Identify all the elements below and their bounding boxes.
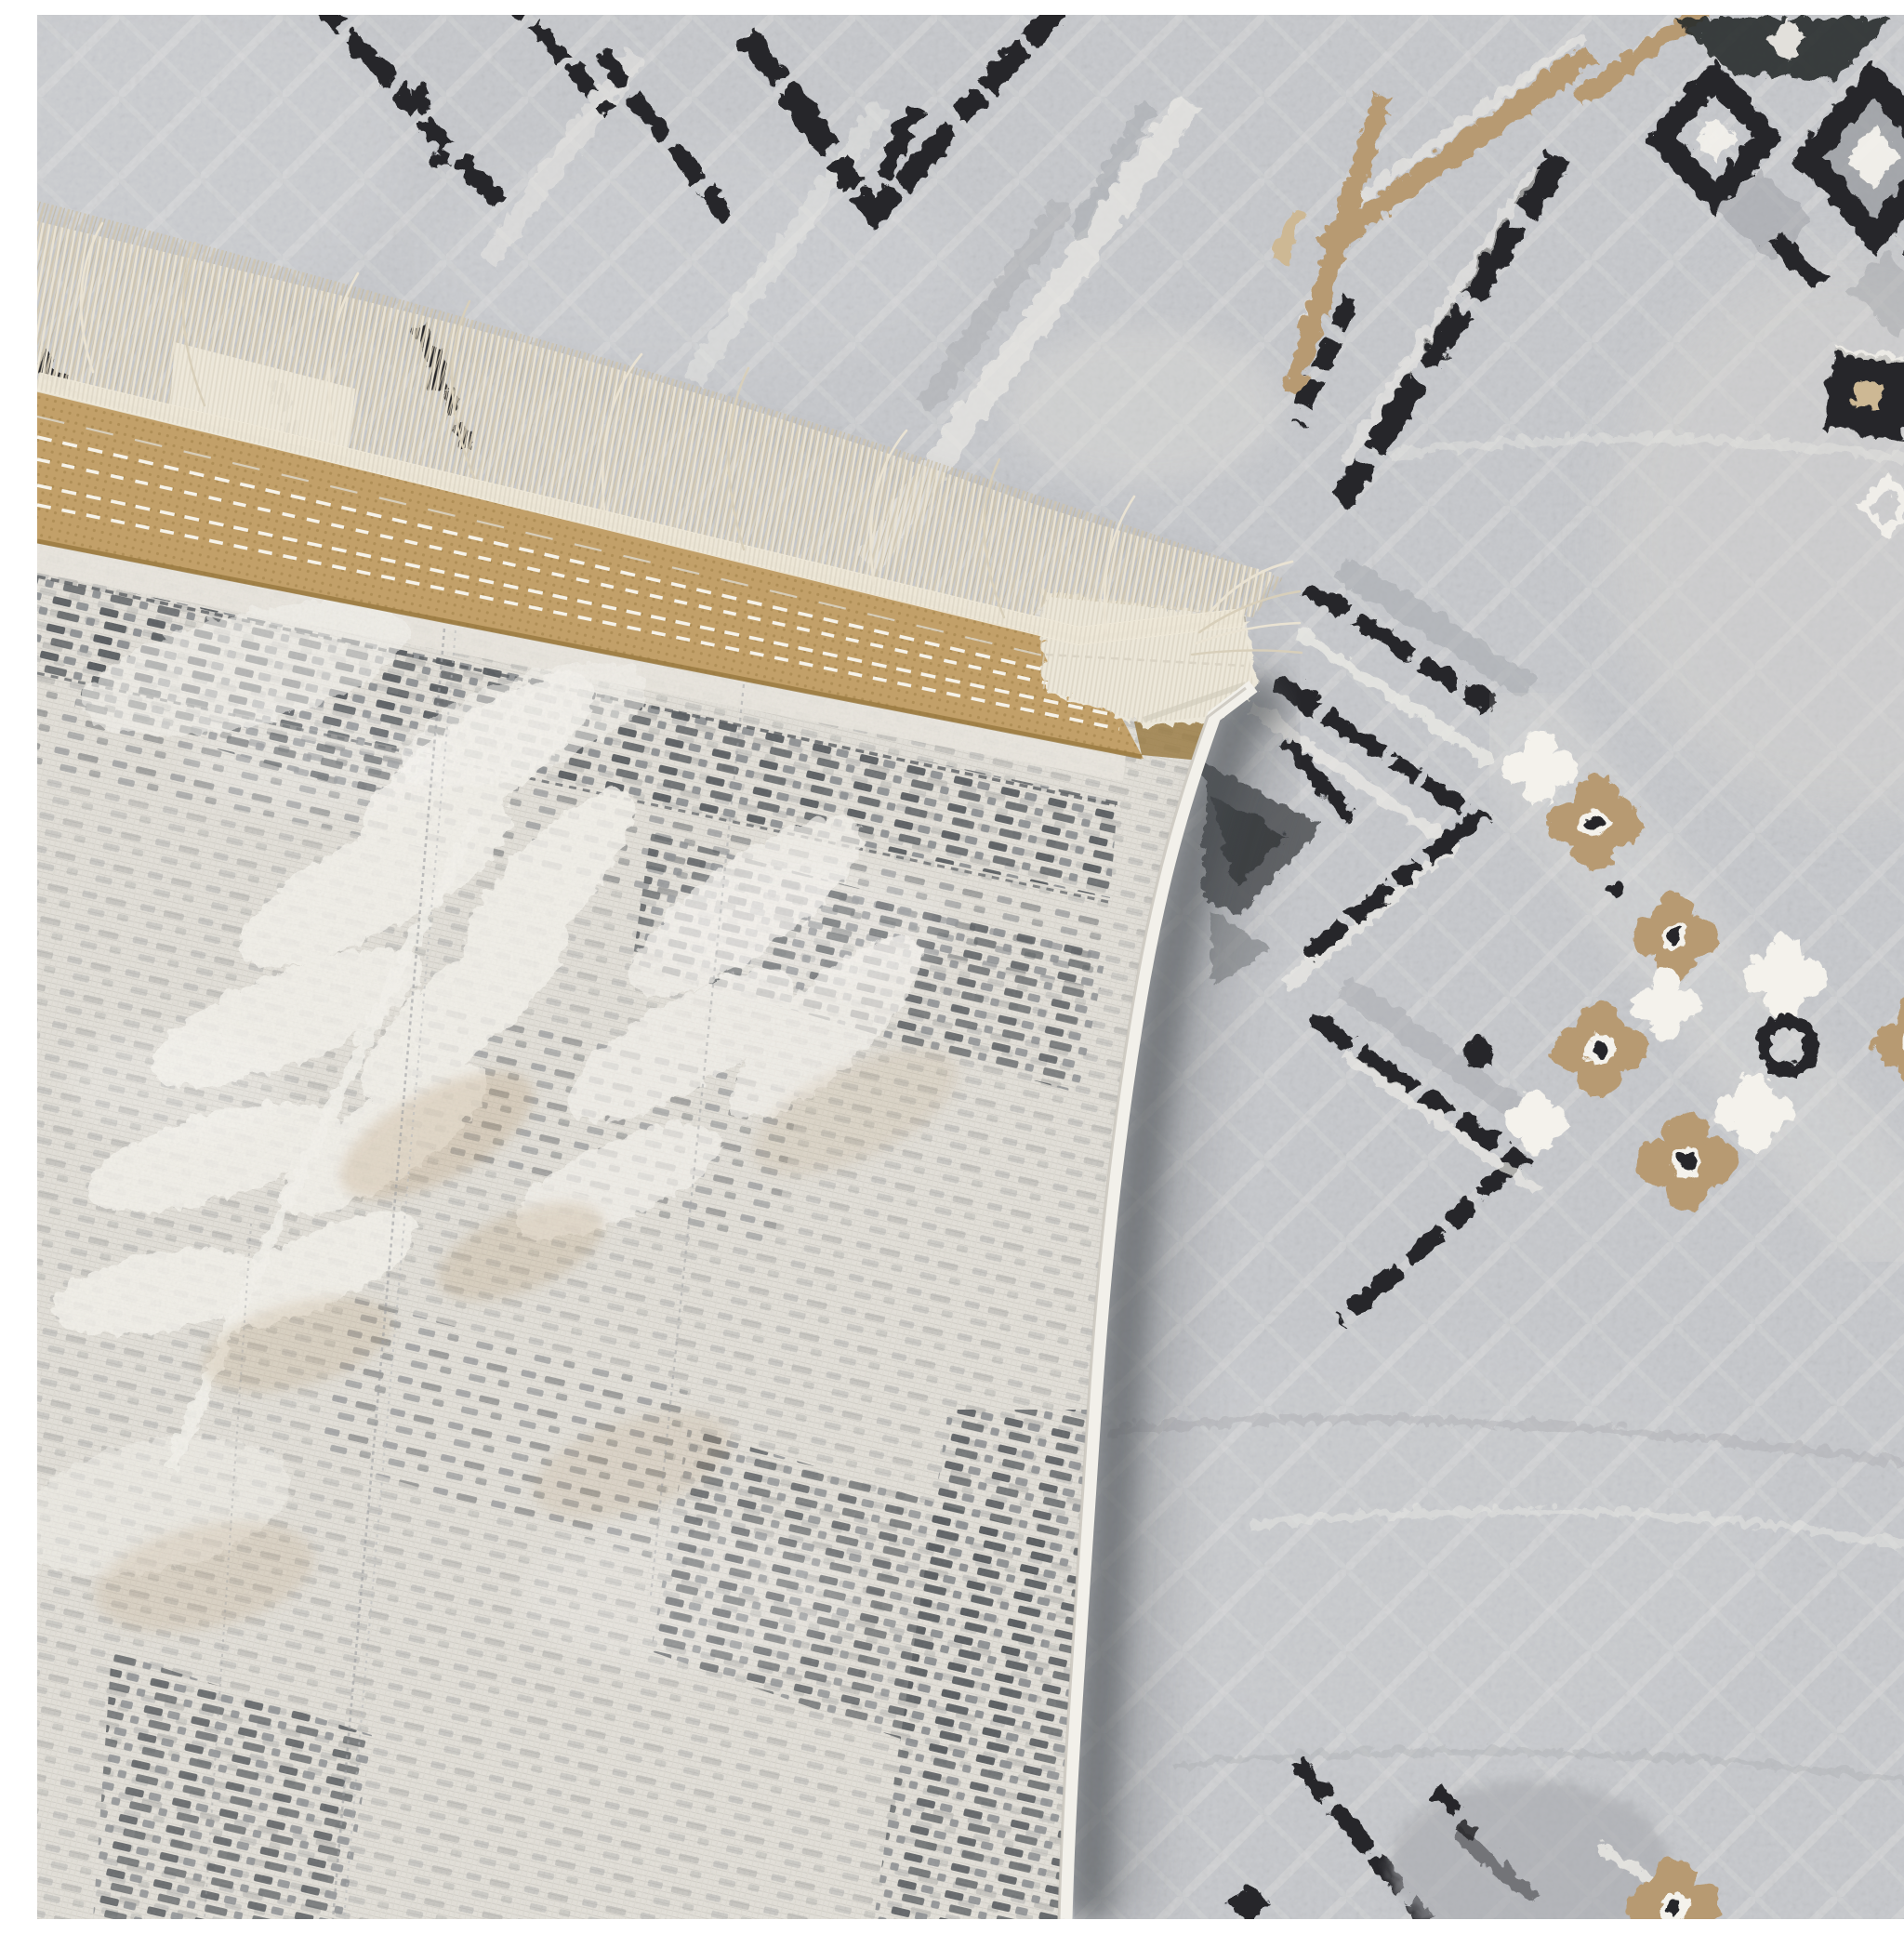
rug-photo: Close-up photograph of a machine-woven a… [37, 15, 1904, 1919]
rug-photo-canvas: Close-up photograph of a machine-woven a… [37, 15, 1904, 1919]
